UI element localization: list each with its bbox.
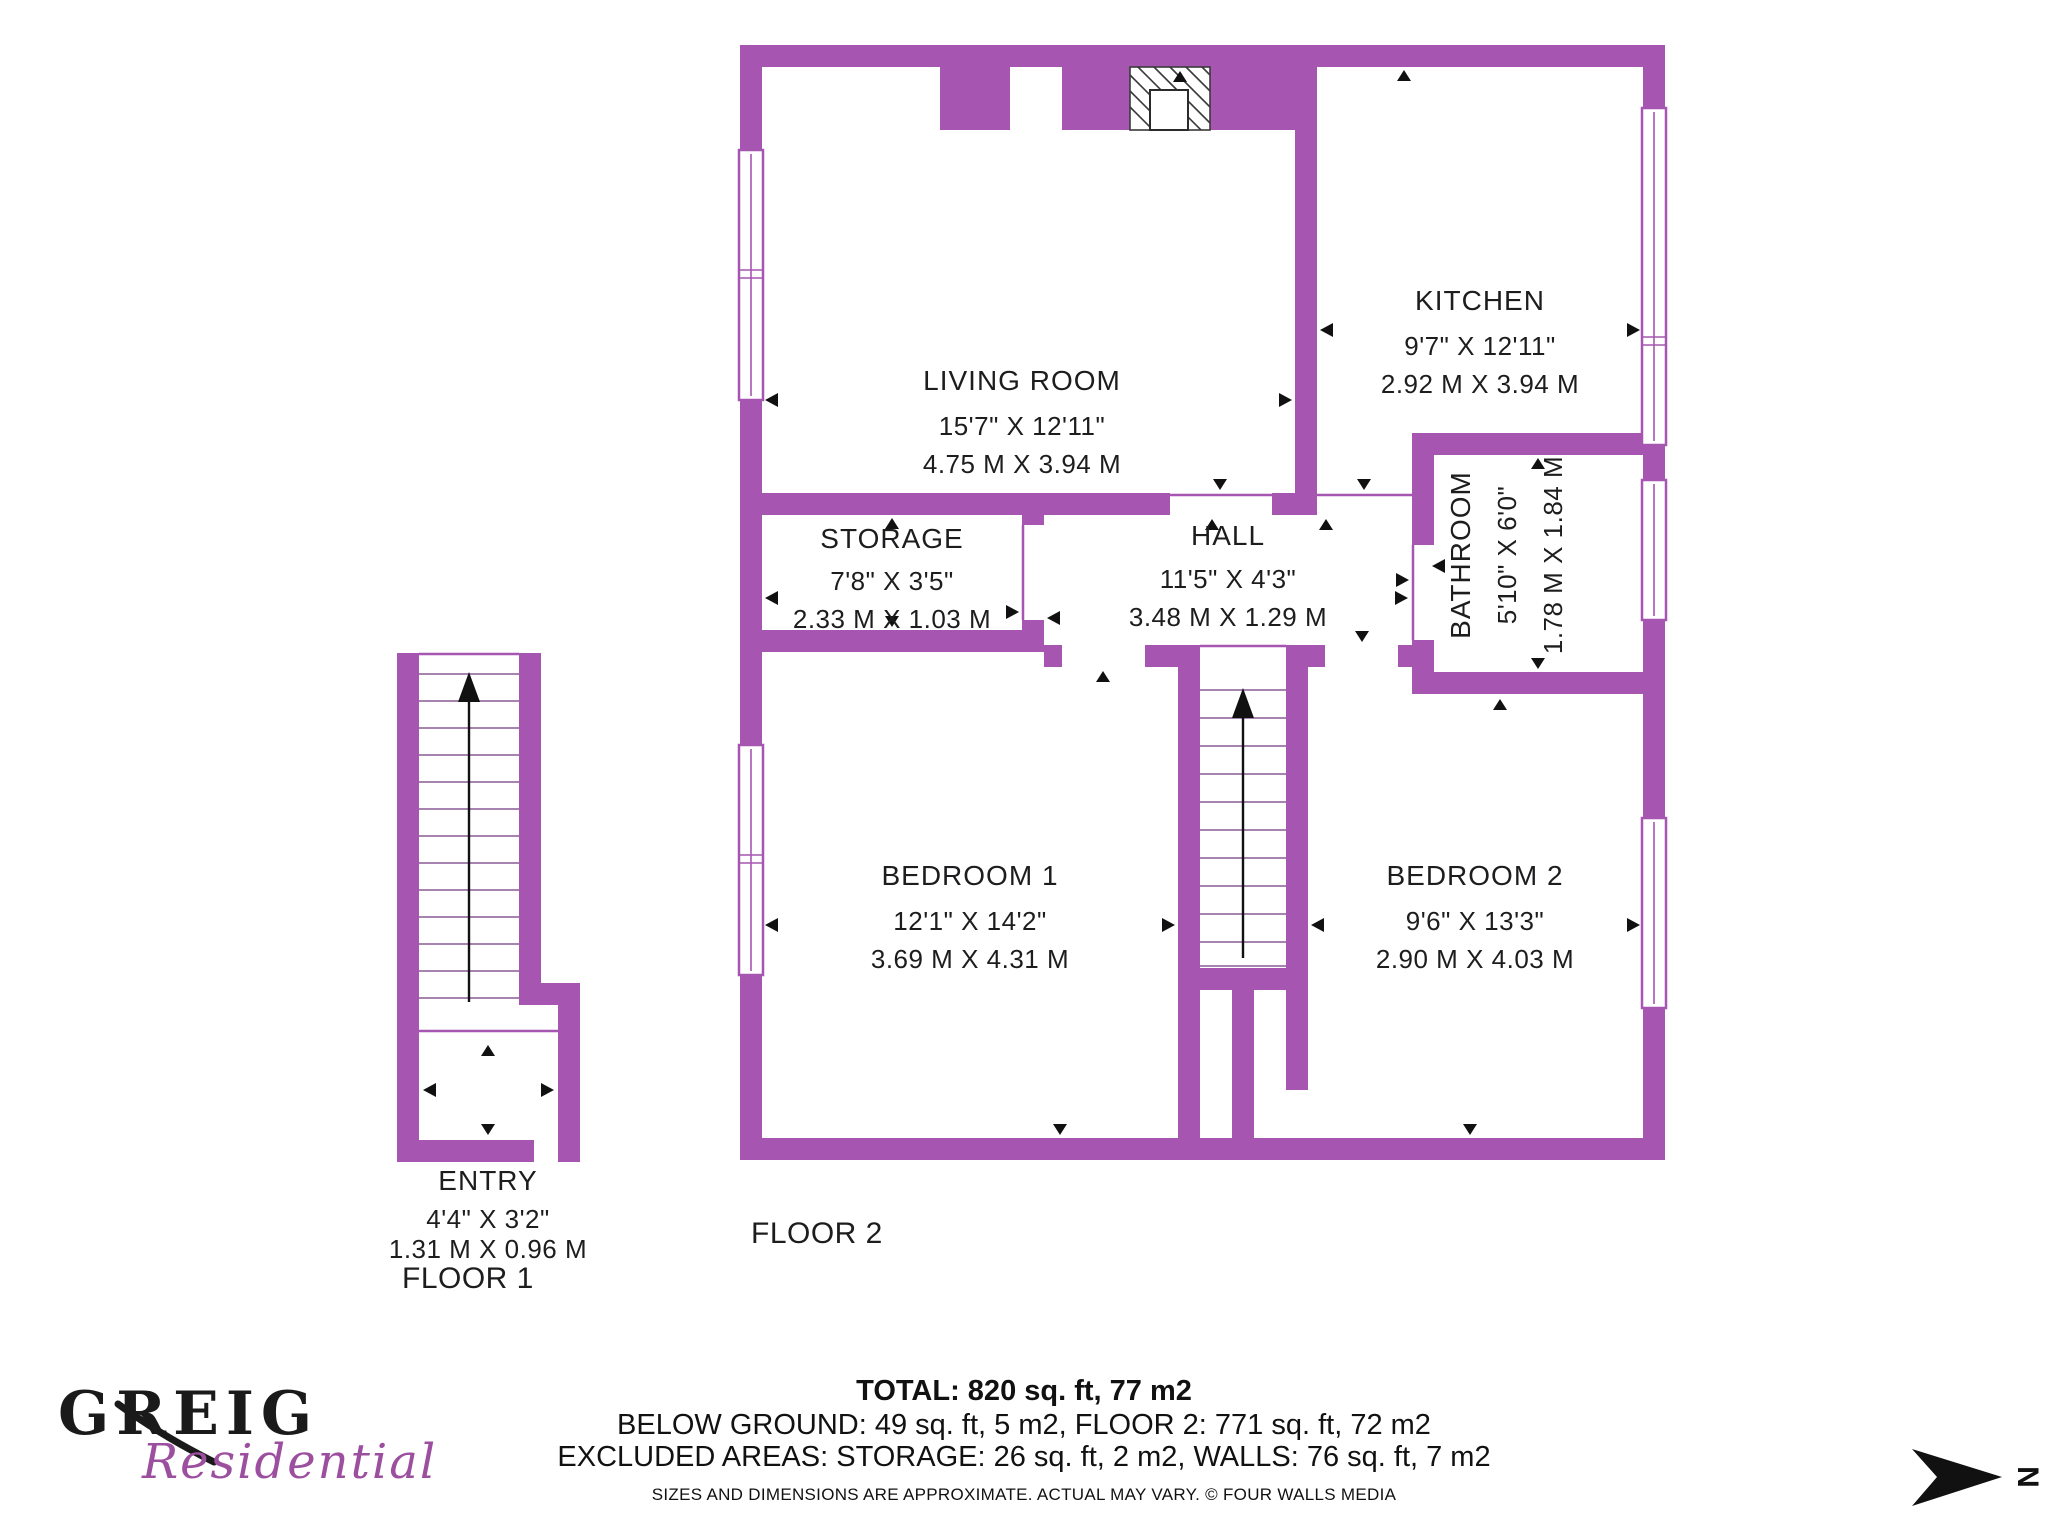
living-room-dim-m: 4.75 M X 3.94 M <box>923 449 1121 479</box>
dim-arrow-down-icon <box>1355 631 1369 642</box>
dim-arrow-right-icon <box>1279 393 1292 407</box>
dim-arrow-down-icon <box>1463 1124 1477 1135</box>
floorplan-canvas: LIVING ROOM 15'7" X 12'11" 4.75 M X 3.94… <box>0 0 2048 1536</box>
dim-arrow-left-icon <box>765 918 778 932</box>
north-compass: N <box>1912 1449 2044 1506</box>
kitchen-dim-m: 2.92 M X 3.94 M <box>1381 369 1579 399</box>
dim-arrow-right-icon <box>1627 323 1640 337</box>
dim-arrow-right-icon <box>1395 591 1408 605</box>
bedroom1-window <box>739 745 763 975</box>
dim-arrow-right-icon <box>1006 605 1019 619</box>
north-label: N <box>2011 1466 2044 1488</box>
dim-arrow-left-icon <box>1311 918 1324 932</box>
dim-arrow-left-icon <box>1047 611 1060 625</box>
summary-block: TOTAL: 820 sq. ft, 77 m2 BELOW GROUND: 4… <box>557 1375 1490 1504</box>
hall-title: HALL <box>1191 520 1265 551</box>
entry-staircase <box>419 672 519 1002</box>
dim-arrow-down-icon <box>1213 479 1227 490</box>
bathroom-dim-m: 1.78 M X 1.84 M <box>1538 456 1568 654</box>
hall-dim-m: 3.48 M X 1.29 M <box>1129 602 1327 632</box>
bathroom-dim-ft: 5'10" X 6'0" <box>1492 486 1522 624</box>
bedroom1-dim-m: 3.69 M X 4.31 M <box>871 944 1069 974</box>
dim-arrow-up-icon <box>1319 519 1333 530</box>
floor1-label: FLOOR 1 <box>402 1262 534 1295</box>
storage-title: STORAGE <box>820 523 963 554</box>
kitchen-window <box>1642 108 1666 445</box>
dim-arrow-down-icon <box>1531 658 1545 669</box>
dim-arrow-right-icon <box>1162 918 1175 932</box>
bathroom-window <box>1642 480 1666 620</box>
dim-arrow-up-icon <box>481 1045 495 1056</box>
greig-residential-logo: GREIG Residential <box>58 1379 437 1490</box>
dim-arrow-left-icon <box>423 1083 436 1097</box>
dim-arrow-left-icon <box>765 393 778 407</box>
dim-arrow-up-icon <box>1096 671 1110 682</box>
dim-arrow-left-icon <box>765 591 778 605</box>
dim-arrow-right-icon <box>1627 918 1640 932</box>
stair-arrowhead-icon <box>1232 688 1254 718</box>
bedroom2-window <box>1642 818 1666 1008</box>
living-room-title: LIVING ROOM <box>923 365 1121 396</box>
bathroom-title: BATHROOM <box>1445 471 1476 639</box>
north-arrow-icon <box>1912 1449 2002 1506</box>
floor1-walls <box>397 653 580 1162</box>
dim-arrow-down-icon <box>1357 479 1371 490</box>
dim-arrow-down-icon <box>481 1124 495 1135</box>
living-window <box>739 150 763 400</box>
living-room-dim-ft: 15'7" X 12'11" <box>939 411 1105 441</box>
bedroom2-dim-ft: 9'6" X 13'3" <box>1406 906 1544 936</box>
bedroom2-title: BEDROOM 2 <box>1386 860 1563 891</box>
summary-line2: BELOW GROUND: 49 sq. ft, 5 m2, FLOOR 2: … <box>617 1409 1431 1441</box>
bedroom1-title: BEDROOM 1 <box>881 860 1058 891</box>
logo-secondary-text: Residential <box>141 1434 437 1490</box>
storage-dim-m: 2.33 M X 1.03 M <box>793 604 991 634</box>
storage-dim-ft: 7'8" X 3'5" <box>830 566 954 596</box>
entry-dim-ft: 4'4" X 3'2" <box>426 1204 550 1234</box>
dim-arrow-left-icon <box>1432 559 1445 573</box>
dim-arrow-up-icon <box>1397 70 1411 81</box>
entry-dim-m: 1.31 M X 0.96 M <box>389 1234 587 1264</box>
dim-arrow-down-icon <box>1053 1124 1067 1135</box>
dim-arrow-left-icon <box>1320 323 1333 337</box>
entry-title: ENTRY <box>438 1165 537 1196</box>
kitchen-dim-ft: 9'7" X 12'11" <box>1404 331 1556 361</box>
hall-dim-ft: 11'5" X 4'3" <box>1160 564 1297 594</box>
chimney-hatch <box>1130 67 1210 130</box>
summary-line3: EXCLUDED AREAS: STORAGE: 26 sq. ft, 2 m2… <box>557 1441 1490 1473</box>
floor2-label: FLOOR 2 <box>751 1217 883 1250</box>
main-staircase <box>1200 688 1286 966</box>
dim-arrow-right-icon <box>541 1083 554 1097</box>
summary-disclaimer: SIZES AND DIMENSIONS ARE APPROXIMATE. AC… <box>652 1485 1397 1504</box>
dim-arrow-up-icon <box>1493 699 1507 710</box>
dim-arrow-right-icon <box>1396 573 1409 587</box>
summary-total: TOTAL: 820 sq. ft, 77 m2 <box>856 1375 1192 1407</box>
floorplan-svg: LIVING ROOM 15'7" X 12'11" 4.75 M X 3.94… <box>0 0 2048 1536</box>
kitchen-title: KITCHEN <box>1415 285 1545 316</box>
stair-arrowhead-icon <box>458 672 480 702</box>
bedroom2-dim-m: 2.90 M X 4.03 M <box>1376 944 1574 974</box>
bedroom1-dim-ft: 12'1" X 14'2" <box>893 906 1046 936</box>
